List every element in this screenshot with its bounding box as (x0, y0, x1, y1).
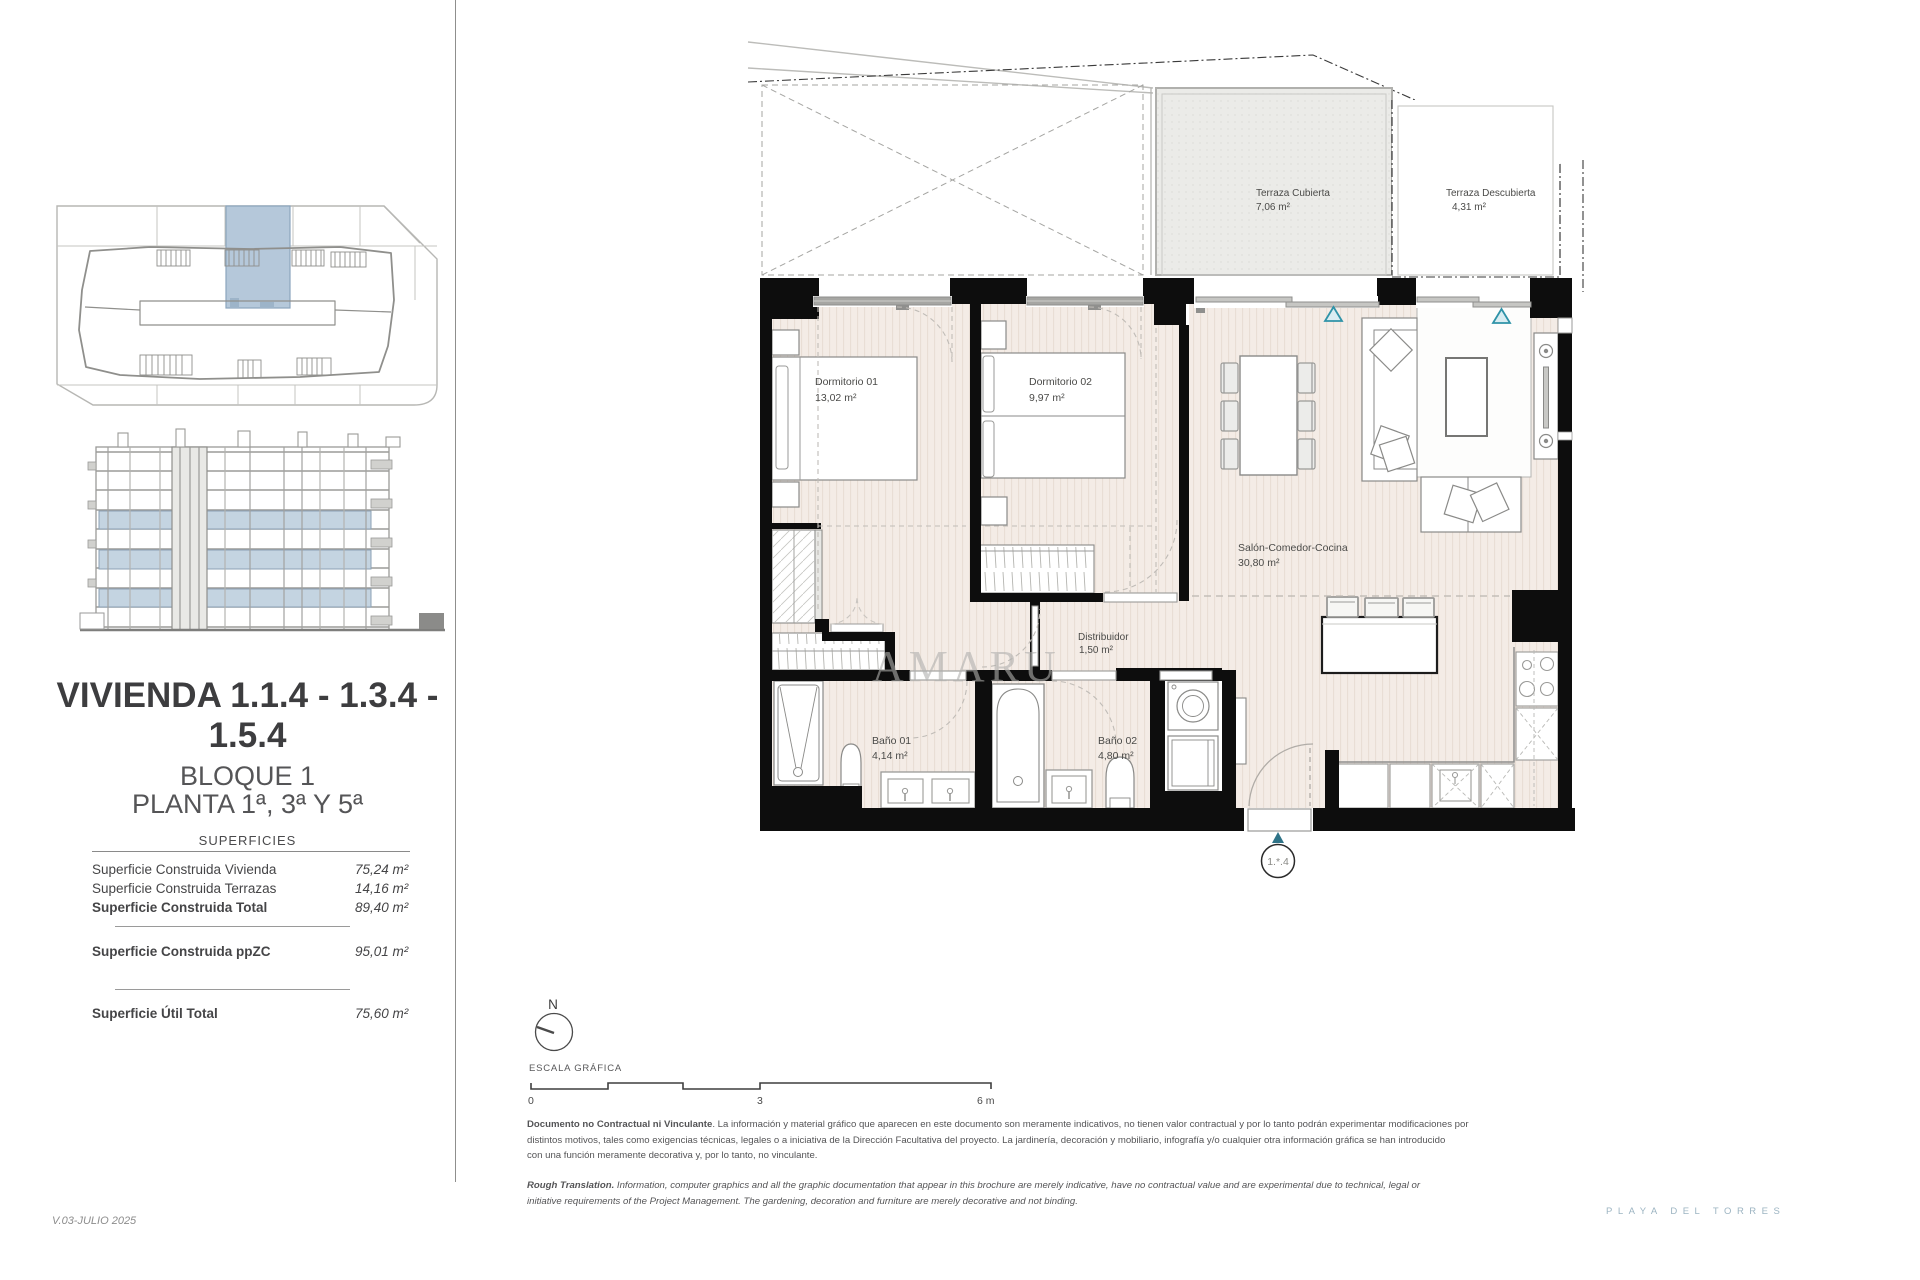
svg-text:Baño 01: Baño 01 (872, 735, 911, 747)
svg-text:6 m: 6 m (977, 1095, 995, 1107)
svg-text:Dormitorio 02: Dormitorio 02 (1029, 376, 1092, 388)
svg-text:9,97 m²: 9,97 m² (1029, 392, 1065, 404)
svg-text:AMARU: AMARU (872, 642, 1061, 691)
svg-text:N: N (548, 997, 558, 1012)
svg-text:13,02 m²: 13,02 m² (815, 392, 857, 404)
svg-text:Distribuidor: Distribuidor (1078, 632, 1129, 643)
svg-text:30,80 m²: 30,80 m² (1238, 557, 1280, 569)
svg-text:Dormitorio 01: Dormitorio 01 (815, 376, 878, 388)
svg-text:Baño 02: Baño 02 (1098, 735, 1137, 747)
svg-text:1,50 m²: 1,50 m² (1079, 645, 1114, 656)
svg-text:0: 0 (528, 1095, 534, 1107)
svg-text:4,80 m²: 4,80 m² (1098, 750, 1134, 762)
svg-text:7,06 m²: 7,06 m² (1256, 202, 1291, 213)
svg-text:4,14 m²: 4,14 m² (872, 750, 908, 762)
svg-text:1.*.4: 1.*.4 (1267, 856, 1289, 868)
svg-text:Terraza Descubierta: Terraza Descubierta (1446, 188, 1536, 199)
svg-text:Salón-Comedor-Cocina: Salón-Comedor-Cocina (1238, 542, 1348, 554)
svg-text:Terraza Cubierta: Terraza Cubierta (1256, 188, 1330, 199)
svg-text:4,31 m²: 4,31 m² (1452, 202, 1487, 213)
svg-text:3: 3 (757, 1095, 763, 1107)
